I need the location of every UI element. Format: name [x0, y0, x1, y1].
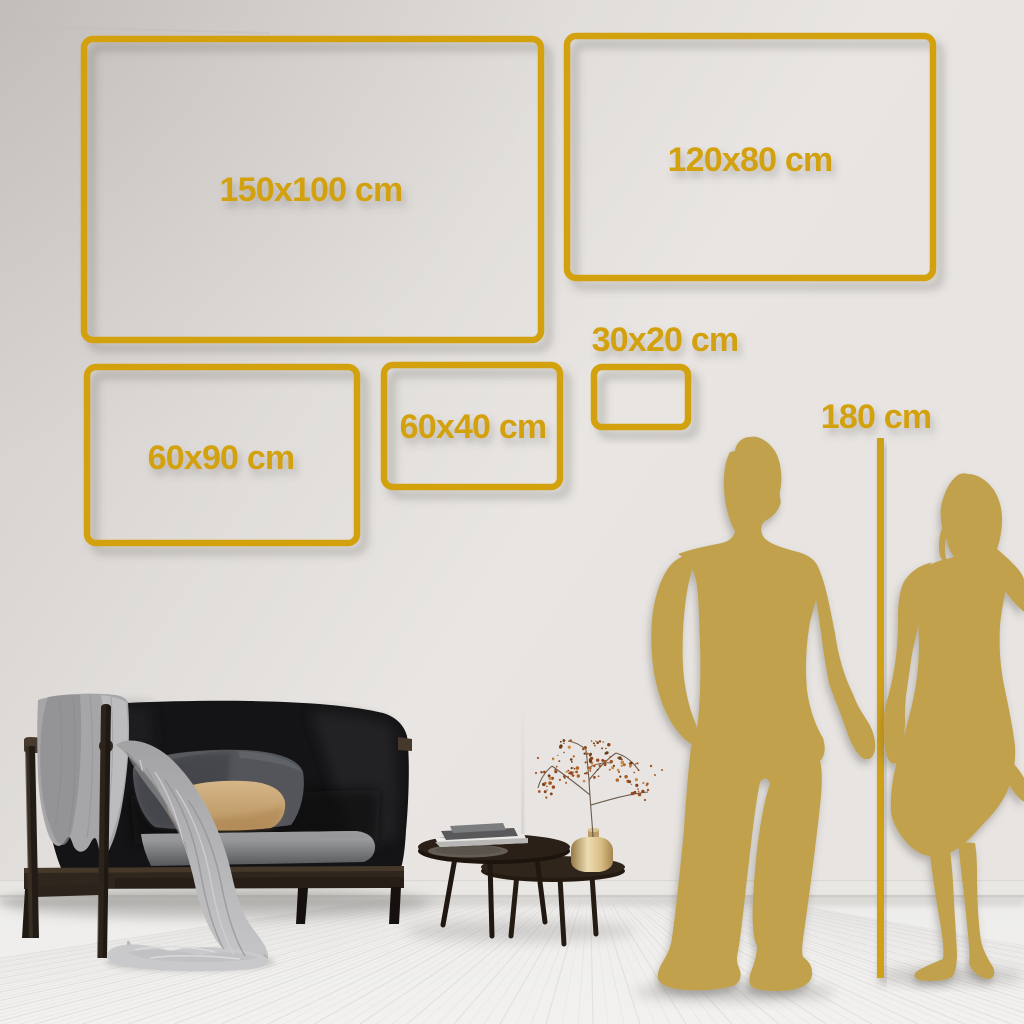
- svg-text:60x40 cm: 60x40 cm: [400, 408, 547, 446]
- svg-text:180 cm: 180 cm: [821, 398, 932, 436]
- svg-text:30x20 cm: 30x20 cm: [592, 321, 739, 359]
- svg-text:150x100 cm: 150x100 cm: [220, 171, 403, 209]
- svg-text:60x90 cm: 60x90 cm: [148, 439, 295, 477]
- svg-text:120x80 cm: 120x80 cm: [668, 141, 833, 179]
